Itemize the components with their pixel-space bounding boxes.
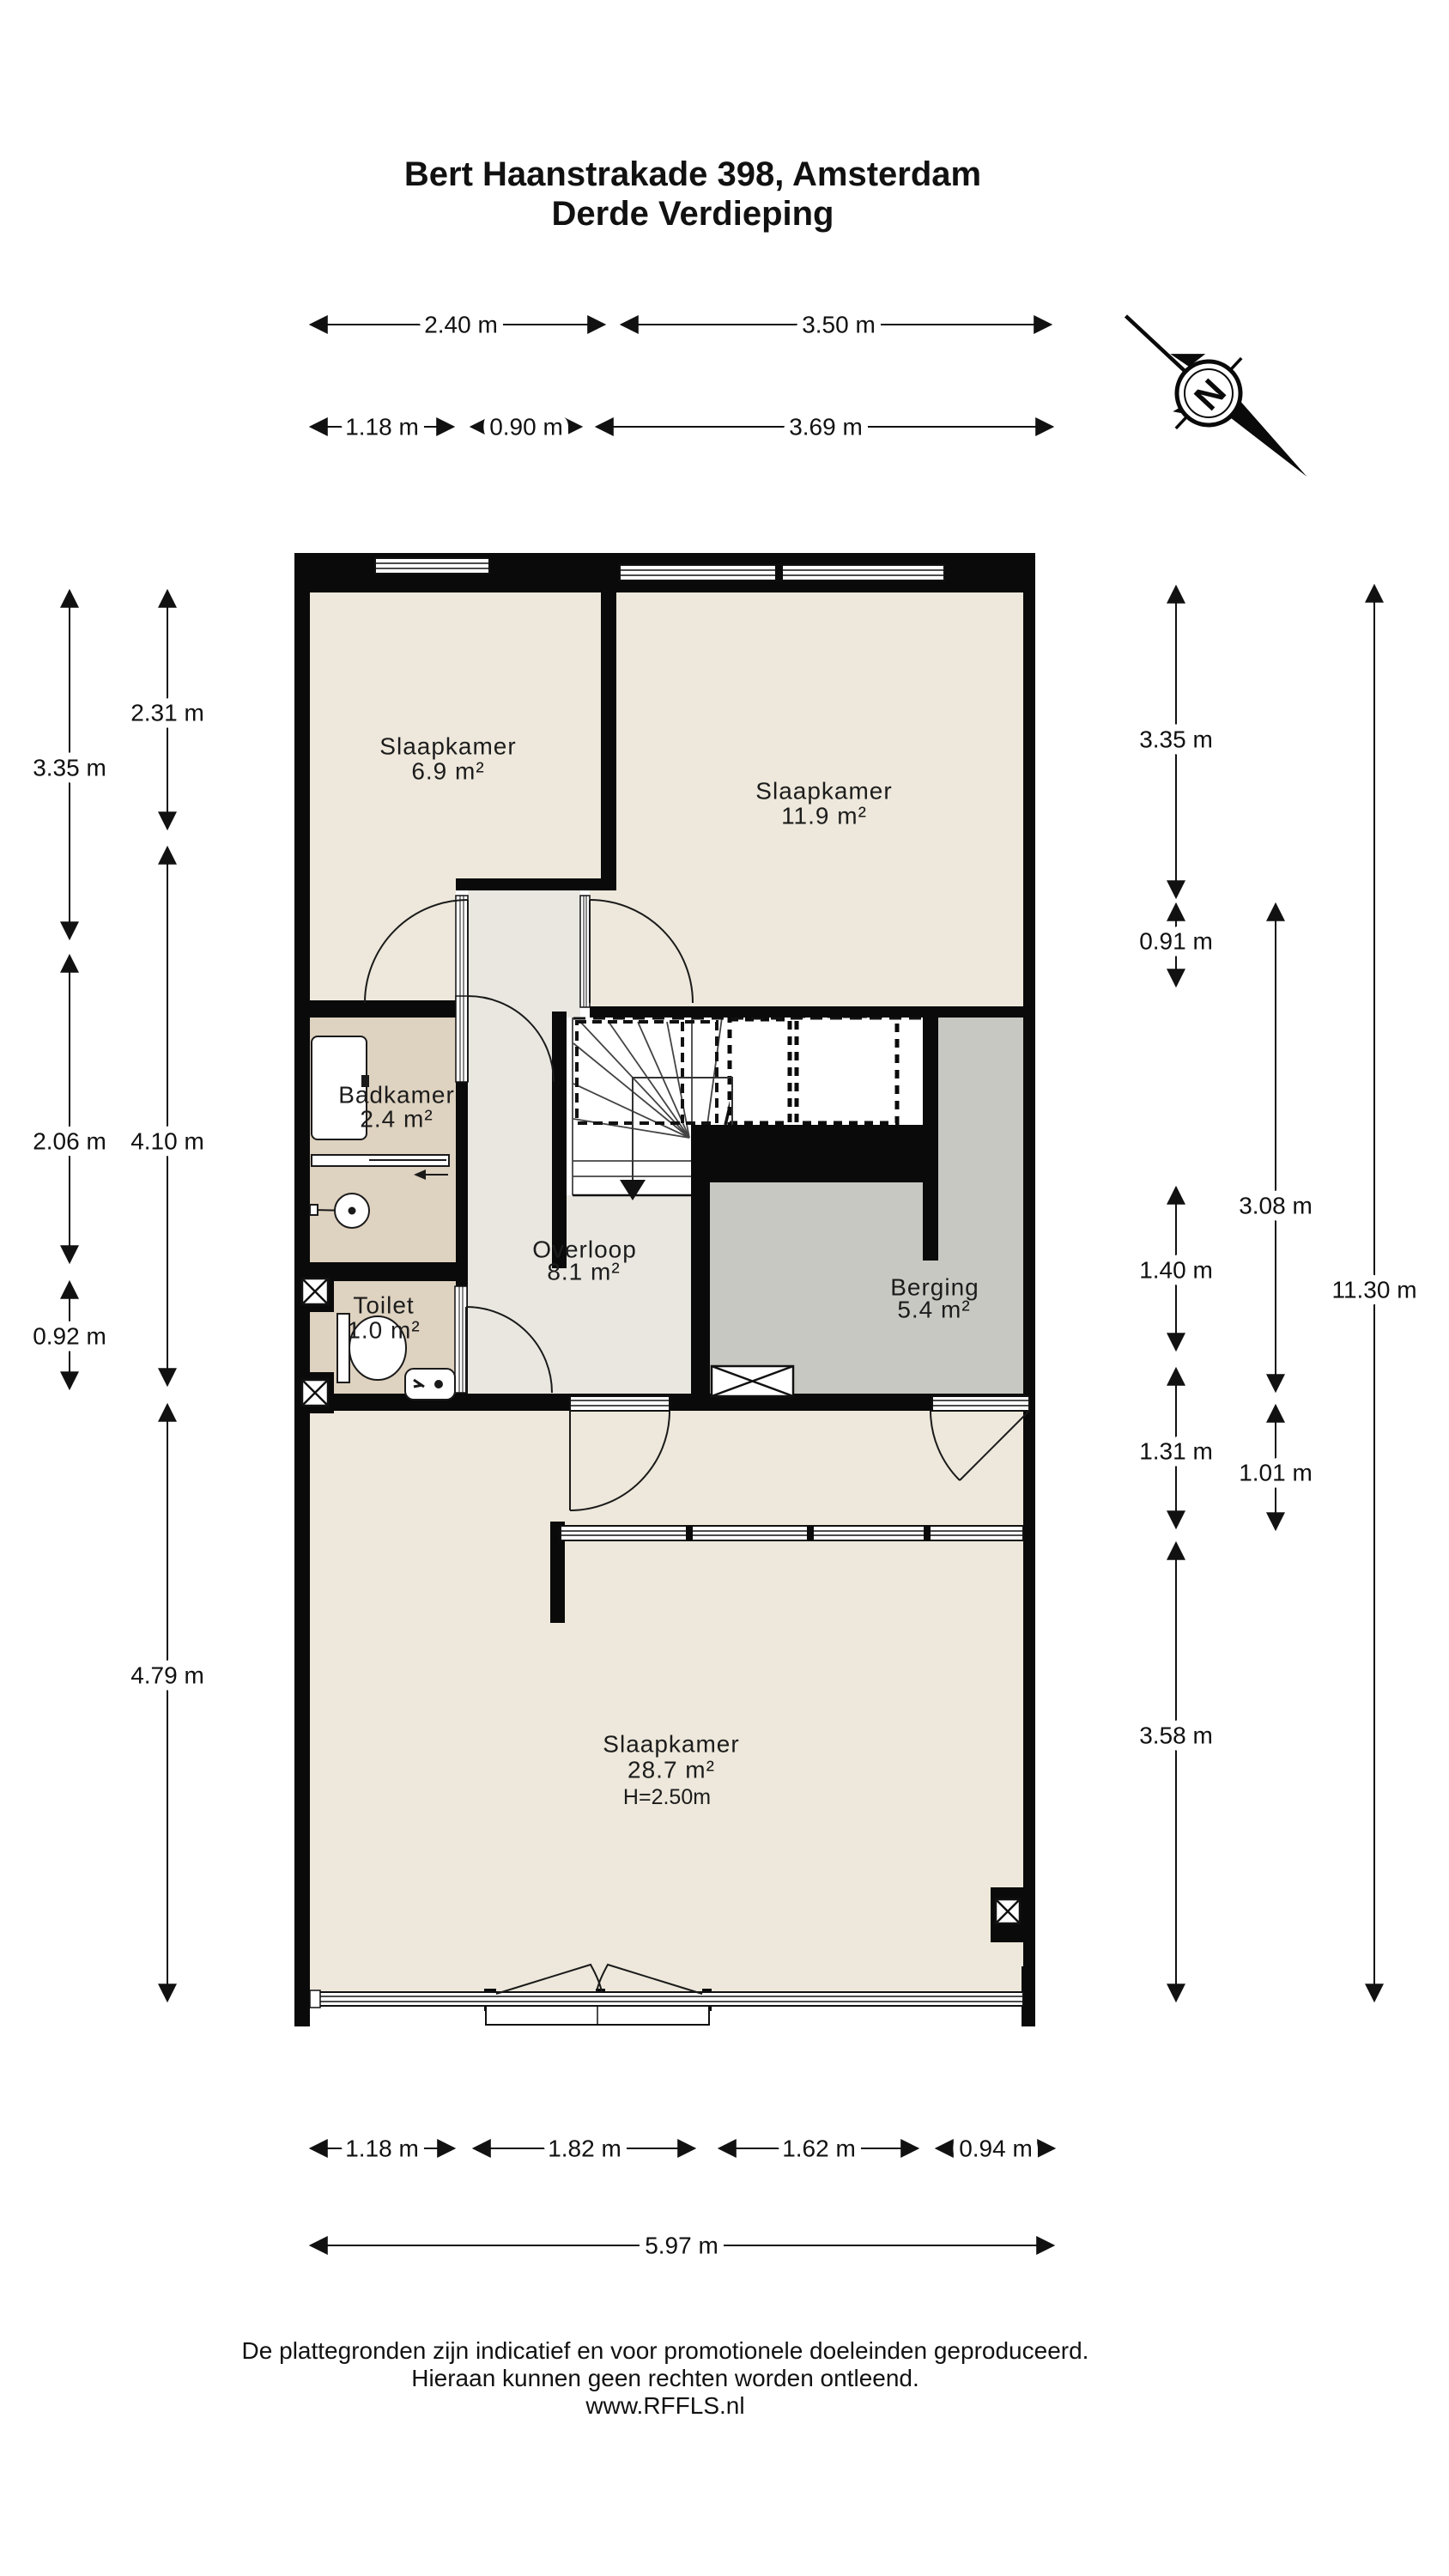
dim-label: 0.94 m xyxy=(959,2136,1033,2162)
dim-label: 1.18 m xyxy=(345,2136,419,2162)
svg-text:6.9 m²: 6.9 m² xyxy=(411,758,484,785)
dim-top-row1: 2.40 m 3.50 m xyxy=(311,312,1051,338)
svg-text:5.4 m²: 5.4 m² xyxy=(897,1297,970,1323)
disclaimer-line1: De plattegronden zijn indicatief en voor… xyxy=(0,2337,1331,2365)
window-bedroom1 xyxy=(375,558,489,574)
disclaimer-url: www.RFFLS.nl xyxy=(0,2392,1331,2420)
floorplan-drawing: Slaapkamer 6.9 m² Slaapkamer 11.9 m² Bad… xyxy=(0,0,1449,2576)
svg-text:H=2.50m: H=2.50m xyxy=(623,1785,711,1809)
dim-label: 1.01 m xyxy=(1239,1460,1313,1486)
svg-text:11.9 m²: 11.9 m² xyxy=(781,803,867,829)
dim-label: 3.69 m xyxy=(789,414,863,440)
dim-label: 4.79 m xyxy=(130,1662,204,1689)
svg-text:2.4 m²: 2.4 m² xyxy=(360,1106,433,1133)
dim-bottom-row1: 1.18 m 1.82 m 1.62 m 0.94 m xyxy=(311,2136,1054,2162)
dim-label: 1.62 m xyxy=(782,2136,856,2162)
page-title: Bert Haanstrakade 398, Amsterdam Derde V… xyxy=(0,155,1385,234)
dim-label: 2.40 m xyxy=(424,312,498,338)
dim-label: 2.31 m xyxy=(130,700,204,726)
dim-label: 2.06 m xyxy=(33,1128,106,1155)
svg-text:28.7 m²: 28.7 m² xyxy=(627,1757,715,1783)
dim-label: 3.35 m xyxy=(33,755,106,781)
dim-label: 3.58 m xyxy=(1139,1722,1213,1749)
threshold-storage xyxy=(932,1396,1029,1411)
dim-label: 4.10 m xyxy=(130,1128,204,1155)
disclaimer: De plattegronden zijn indicatief en voor… xyxy=(0,2337,1331,2420)
dim-label: 3.35 m xyxy=(1139,726,1213,753)
svg-text:Slaapkamer: Slaapkamer xyxy=(603,1731,739,1758)
dim-right-col1: 3.35 m 0.91 m 1.40 m 1.31 m 3.58 m xyxy=(1139,586,1213,2001)
title-floor: Derde Verdieping xyxy=(0,194,1385,234)
toilet-basin xyxy=(405,1369,455,1400)
dim-label: 11.30 m xyxy=(1331,1277,1416,1303)
balcony-sill xyxy=(486,2006,709,2025)
dim-label: 1.18 m xyxy=(345,414,419,440)
dim-right-col3: 11.30 m xyxy=(1331,586,1416,2001)
dim-label: 0.91 m xyxy=(1139,928,1213,955)
dim-label: 0.90 m xyxy=(489,414,563,440)
dim-right-col2: 3.08 m 1.01 m xyxy=(1239,904,1313,1529)
floorplan-page: Bert Haanstrakade 398, Amsterdam Derde V… xyxy=(0,0,1449,2576)
dim-label: 1.82 m xyxy=(548,2136,621,2162)
dim-label: 5.97 m xyxy=(645,2233,718,2259)
svg-text:Slaapkamer: Slaapkamer xyxy=(755,778,892,805)
svg-text:Badkamer: Badkamer xyxy=(338,1082,455,1109)
svg-text:Slaapkamer: Slaapkamer xyxy=(379,733,516,760)
dim-label: 3.50 m xyxy=(802,312,876,338)
dim-bottom-row2: 5.97 m xyxy=(311,2233,1053,2259)
window-bedroom2 xyxy=(620,565,944,580)
label-toilet: Toilet 1.0 m² xyxy=(347,1292,420,1344)
compass-north-icon: N xyxy=(1093,281,1336,516)
dim-label: 1.40 m xyxy=(1139,1257,1213,1284)
threshold-hall-bedroom xyxy=(570,1396,670,1411)
disclaimer-line2: Hieraan kunnen geen rechten worden ontle… xyxy=(0,2365,1331,2392)
svg-text:8.1 m²: 8.1 m² xyxy=(547,1259,620,1285)
dim-left-inner: 2.31 m 4.10 m 4.79 m xyxy=(130,591,204,2001)
dim-label: 0.92 m xyxy=(33,1323,106,1350)
dim-top-row2: 1.18 m 0.90 m 3.69 m xyxy=(311,414,1052,440)
svg-text:Toilet: Toilet xyxy=(353,1292,414,1319)
dim-label: 3.08 m xyxy=(1239,1193,1313,1219)
svg-text:1.0 m²: 1.0 m² xyxy=(347,1317,420,1344)
title-address: Bert Haanstrakade 398, Amsterdam xyxy=(0,155,1385,194)
label-berging: Berging 5.4 m² xyxy=(890,1274,979,1323)
dim-left-outer: 3.35 m 2.06 m 0.92 m xyxy=(33,591,106,1388)
dim-label: 1.31 m xyxy=(1139,1438,1213,1465)
